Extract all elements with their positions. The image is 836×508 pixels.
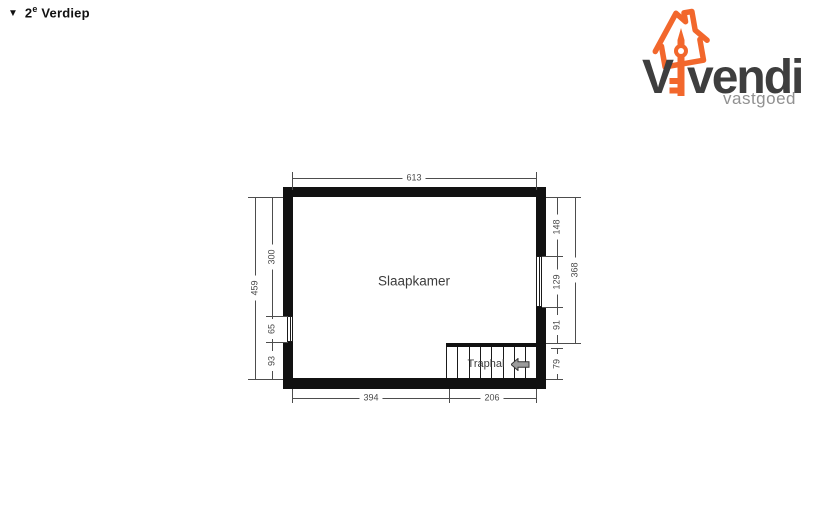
wall-left — [283, 187, 293, 388]
dim-label-left-seg2: 65 — [267, 319, 278, 339]
dim-label-bottom-right: 206 — [480, 393, 503, 404]
floor-title: 2e Verdiep — [25, 4, 90, 20]
stairs-top-edge — [446, 343, 546, 347]
dim-label-left-seg3: 93 — [267, 351, 278, 371]
dim-label-top: 613 — [402, 173, 425, 184]
logo-subtitle: vastgoed — [723, 89, 796, 108]
wall-bottom — [283, 378, 546, 389]
dim-tick — [536, 172, 537, 190]
dim-tick — [551, 348, 563, 349]
dim-tick — [292, 389, 293, 403]
dim-label-right-outer: 368 — [570, 257, 581, 282]
dim-tick — [542, 307, 563, 308]
dim-tick — [266, 316, 288, 317]
dim-tick — [546, 379, 563, 380]
vivendi-logo: V vendi vastgoed — [640, 2, 810, 108]
room-label-traphal: Traphal — [468, 358, 505, 370]
dim-tick — [449, 389, 450, 403]
dim-label-left-outer: 459 — [250, 275, 261, 300]
wall-top — [283, 187, 546, 197]
dim-tick — [542, 256, 563, 257]
vivendi-logo-graphic: V vendi vastgoed — [640, 2, 810, 108]
dim-tick — [248, 379, 283, 380]
dim-label-bottom-left: 394 — [359, 393, 382, 404]
dropdown-triangle-icon[interactable]: ▼ — [8, 8, 18, 19]
dim-label-right-seg4: 79 — [552, 354, 563, 374]
window-left — [287, 316, 293, 342]
dim-tick — [266, 342, 288, 343]
logo-letter-v: V — [642, 51, 674, 104]
dim-tick — [546, 343, 581, 344]
window-pane — [290, 317, 291, 341]
stairs-direction-arrow-icon — [511, 358, 530, 371]
dim-tick — [248, 197, 283, 198]
dim-tick — [536, 389, 537, 403]
dim-label-right-seg2: 129 — [552, 269, 563, 294]
room-label-slaapkamer: Slaapkamer — [378, 274, 450, 289]
dim-tick — [292, 172, 293, 190]
dim-label-right-seg3: 91 — [552, 315, 563, 335]
window-right — [536, 256, 542, 307]
floor-selector[interactable]: ▼ 2e Verdiep — [8, 4, 90, 20]
window-pane — [539, 257, 540, 306]
stair-tread — [446, 347, 447, 378]
stair-tread — [457, 347, 458, 378]
dim-label-left-seg1: 300 — [267, 244, 278, 269]
dim-label-right-seg1: 148 — [552, 214, 563, 239]
